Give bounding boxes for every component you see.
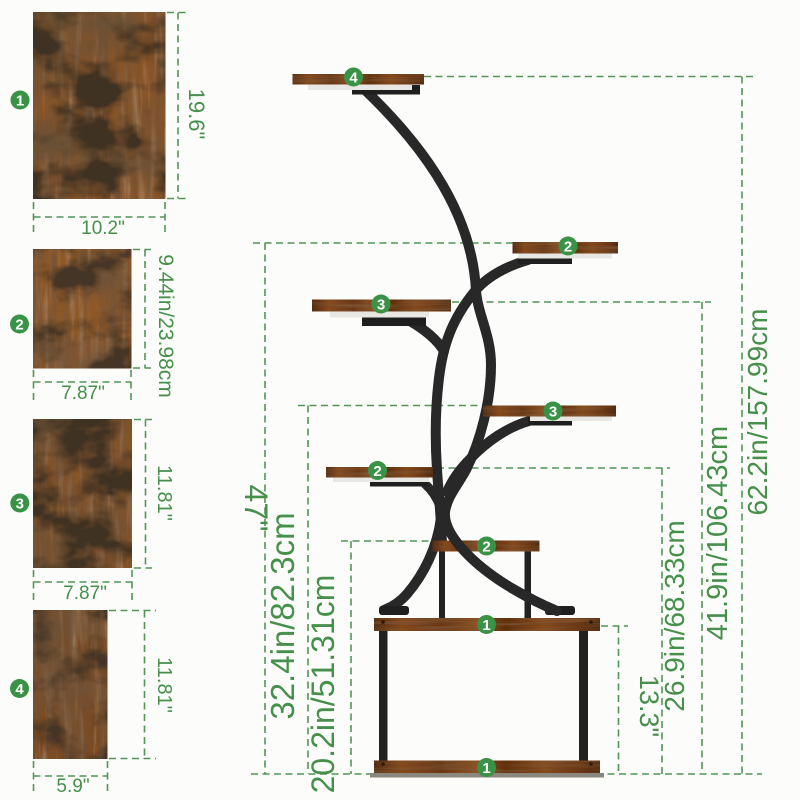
svg-text:62.2in/157.99cm: 62.2in/157.99cm — [742, 308, 773, 515]
svg-text:20.2in/51.31cm: 20.2in/51.31cm — [305, 575, 341, 794]
svg-text:5.9": 5.9" — [56, 776, 89, 797]
svg-text:19.6": 19.6" — [184, 89, 209, 140]
svg-text:4: 4 — [15, 681, 24, 698]
svg-text:7.87": 7.87" — [63, 583, 107, 604]
svg-text:2: 2 — [564, 238, 572, 255]
svg-text:1: 1 — [482, 617, 490, 634]
svg-text:1: 1 — [16, 92, 24, 109]
svg-text:11.81": 11.81" — [153, 657, 175, 713]
svg-text:4: 4 — [349, 69, 358, 86]
svg-text:7.87": 7.87" — [61, 383, 105, 404]
svg-text:9.44in/23.98cm: 9.44in/23.98cm — [154, 254, 177, 398]
svg-text:2: 2 — [373, 463, 381, 480]
svg-text:2: 2 — [482, 538, 490, 555]
svg-text:26.9in/68.33cm: 26.9in/68.33cm — [659, 520, 690, 711]
svg-text:2: 2 — [15, 316, 23, 333]
svg-text:11.81": 11.81" — [153, 465, 175, 521]
svg-text:10.2": 10.2" — [81, 218, 125, 239]
svg-text:32.4in/82.3cm: 32.4in/82.3cm — [264, 512, 301, 719]
svg-text:3: 3 — [16, 495, 24, 512]
svg-text:3: 3 — [549, 403, 557, 420]
svg-text:41.9in/106.43cm: 41.9in/106.43cm — [702, 426, 734, 640]
svg-text:3: 3 — [377, 296, 385, 313]
svg-text:1: 1 — [482, 760, 490, 777]
